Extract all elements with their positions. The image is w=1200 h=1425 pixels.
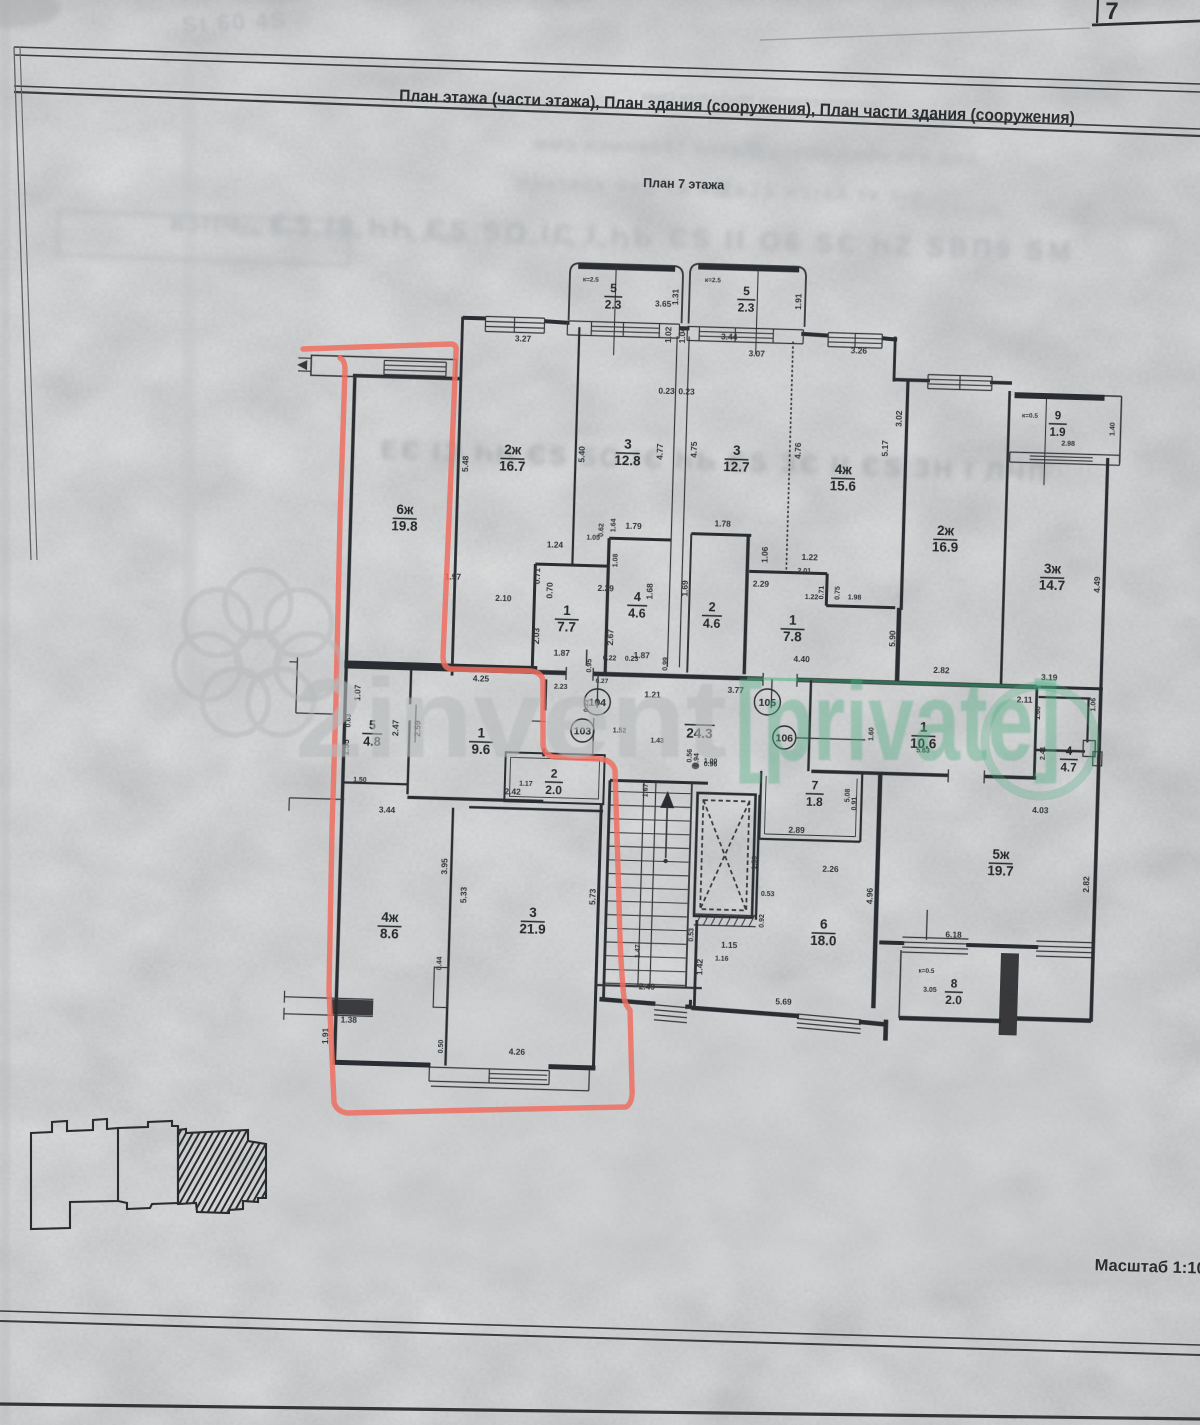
svg-text:2.89: 2.89 xyxy=(788,825,805,835)
svg-text:9: 9 xyxy=(1055,410,1062,422)
svg-text:5.17: 5.17 xyxy=(880,440,890,457)
svg-text:2.49: 2.49 xyxy=(639,981,656,991)
svg-text:2.3: 2.3 xyxy=(738,300,755,314)
svg-text:4: 4 xyxy=(634,590,641,604)
svg-text:21.9: 21.9 xyxy=(519,921,546,937)
svg-text:12.8: 12.8 xyxy=(614,453,641,469)
svg-text:19.8: 19.8 xyxy=(391,518,418,534)
svg-text:1.42: 1.42 xyxy=(694,958,704,975)
svg-text:1.15: 1.15 xyxy=(721,940,738,950)
svg-text:5: 5 xyxy=(743,284,750,298)
svg-text:12.7: 12.7 xyxy=(723,459,750,475)
svg-text:1: 1 xyxy=(563,603,571,618)
svg-text:0.23: 0.23 xyxy=(658,386,675,396)
svg-text:Масштаб 1:10: Масштаб 1:10 xyxy=(1094,1256,1200,1277)
svg-text:к=0.5: к=0.5 xyxy=(918,968,935,975)
svg-text:1.91: 1.91 xyxy=(793,293,803,310)
svg-text:1.04: 1.04 xyxy=(677,327,687,344)
svg-text:14.7: 14.7 xyxy=(1039,577,1066,593)
svg-text:4ж: 4ж xyxy=(835,462,853,478)
svg-text:0.62: 0.62 xyxy=(598,523,605,537)
svg-text:2.03: 2.03 xyxy=(531,627,541,644)
svg-text:5.40: 5.40 xyxy=(576,446,586,463)
svg-text:2.26: 2.26 xyxy=(822,864,839,874)
svg-text:[private]: [private] xyxy=(735,659,1061,784)
svg-text:6ж: 6ж xyxy=(396,502,414,518)
svg-text:3: 3 xyxy=(529,905,537,920)
svg-text:1.08: 1.08 xyxy=(612,553,619,567)
svg-text:5.48: 5.48 xyxy=(460,455,470,472)
svg-text:3.27: 3.27 xyxy=(515,333,532,343)
svg-text:2.82: 2.82 xyxy=(1081,876,1091,893)
svg-text:1.59: 1.59 xyxy=(751,856,758,870)
svg-text:4.75: 4.75 xyxy=(689,441,699,458)
svg-text:5ж: 5ж xyxy=(992,847,1010,863)
svg-text:1.8: 1.8 xyxy=(806,795,823,809)
svg-text:5.73: 5.73 xyxy=(587,888,597,905)
svg-text:2.0: 2.0 xyxy=(945,993,962,1007)
svg-text:4.26: 4.26 xyxy=(509,1046,526,1056)
svg-text:1.40: 1.40 xyxy=(1109,422,1116,436)
svg-text:1.06: 1.06 xyxy=(759,546,769,563)
svg-text:6: 6 xyxy=(820,917,828,932)
svg-text:0.23: 0.23 xyxy=(678,386,695,396)
svg-text:3.44: 3.44 xyxy=(379,804,396,814)
svg-text:16.9: 16.9 xyxy=(932,539,959,555)
svg-text:2.98: 2.98 xyxy=(1061,441,1075,448)
svg-text:3: 3 xyxy=(733,443,741,458)
svg-text:1.69: 1.69 xyxy=(679,580,689,597)
svg-text:2ж: 2ж xyxy=(937,523,955,539)
svg-text:4.77: 4.77 xyxy=(655,443,665,460)
svg-text:7.7: 7.7 xyxy=(557,619,576,635)
svg-text:1.22: 1.22 xyxy=(801,552,818,562)
svg-text:4ж: 4ж xyxy=(381,910,399,926)
svg-text:1.38: 1.38 xyxy=(340,1014,357,1024)
svg-text:2.29: 2.29 xyxy=(753,578,770,588)
svg-text:(ЅИЅ): (ЅИЅ) xyxy=(1060,82,1120,106)
svg-text:1.02: 1.02 xyxy=(663,326,673,343)
svg-text:8: 8 xyxy=(951,977,958,991)
svg-text:7.8: 7.8 xyxy=(783,629,803,645)
svg-text:1.79: 1.79 xyxy=(625,521,642,531)
svg-text:3.95: 3.95 xyxy=(439,858,449,875)
svg-text:6.18: 6.18 xyxy=(945,929,962,939)
svg-text:0.91: 0.91 xyxy=(851,797,858,811)
svg-text:1.47: 1.47 xyxy=(635,944,642,958)
svg-text:План 7 этажа: План 7 этажа xyxy=(643,176,726,192)
svg-text:1: 1 xyxy=(789,613,797,628)
svg-text:к=2.5: к=2.5 xyxy=(705,277,722,284)
svg-text:2.01: 2.01 xyxy=(797,568,811,575)
svg-text:4: 4 xyxy=(1066,746,1073,758)
svg-text:0.71: 0.71 xyxy=(532,567,542,584)
svg-text:3.02: 3.02 xyxy=(894,410,904,427)
svg-text:0.44: 0.44 xyxy=(436,956,443,970)
svg-text:1.17: 1.17 xyxy=(519,781,533,788)
svg-text:0.53: 0.53 xyxy=(688,928,695,942)
svg-text:к=2.5: к=2.5 xyxy=(583,276,600,283)
svg-text:8.6: 8.6 xyxy=(380,926,400,942)
svg-text:3.07: 3.07 xyxy=(748,348,765,358)
svg-text:к=0.5: к=0.5 xyxy=(1022,412,1039,419)
svg-text:1.22: 1.22 xyxy=(805,594,819,601)
svg-text:1.16: 1.16 xyxy=(715,956,729,963)
svg-text:0.53: 0.53 xyxy=(761,891,775,898)
svg-text:5: 5 xyxy=(610,281,617,295)
svg-text:16.7: 16.7 xyxy=(499,458,526,474)
svg-text:2.3: 2.3 xyxy=(605,297,622,311)
svg-text:2.10: 2.10 xyxy=(495,593,512,603)
svg-text:нииɔ｣: нииɔ｣ xyxy=(1124,208,1177,230)
svg-text:4.76: 4.76 xyxy=(793,442,803,459)
svg-text:1.9: 1.9 xyxy=(1049,427,1065,439)
svg-text:1.06: 1.06 xyxy=(1090,698,1097,712)
svg-text:19.7: 19.7 xyxy=(987,863,1014,879)
svg-text:4.03: 4.03 xyxy=(1032,805,1049,815)
svg-text:2.29: 2.29 xyxy=(597,583,614,593)
svg-text:0.75: 0.75 xyxy=(834,586,841,600)
svg-text:2.42: 2.42 xyxy=(504,786,521,796)
svg-text:2ж: 2ж xyxy=(504,442,522,458)
svg-text:2: 2 xyxy=(708,600,715,614)
svg-text:15.6: 15.6 xyxy=(829,478,856,494)
svg-text:1.64: 1.64 xyxy=(610,518,617,532)
svg-text:2.67: 2.67 xyxy=(605,629,615,646)
svg-text:3.44: 3.44 xyxy=(721,331,738,341)
svg-text:1.24: 1.24 xyxy=(547,539,564,549)
svg-text:0.70: 0.70 xyxy=(544,582,554,599)
svg-text:4.96: 4.96 xyxy=(864,887,874,904)
svg-text:3ж: 3ж xyxy=(1044,561,1062,577)
svg-text:0.92: 0.92 xyxy=(759,914,766,928)
svg-text:1.67: 1.67 xyxy=(642,783,649,797)
svg-text:5.90: 5.90 xyxy=(887,630,897,647)
svg-text:2invent: 2invent xyxy=(295,656,727,781)
svg-text:3.05: 3.05 xyxy=(923,987,937,994)
svg-text:1.31: 1.31 xyxy=(670,288,680,305)
svg-text:1.98: 1.98 xyxy=(848,594,862,601)
svg-text:5.69: 5.69 xyxy=(775,996,792,1006)
svg-text:18.0: 18.0 xyxy=(810,933,837,949)
svg-text:2.0: 2.0 xyxy=(545,783,562,797)
svg-text:7: 7 xyxy=(1105,0,1118,25)
svg-text:3: 3 xyxy=(624,437,632,452)
svg-text:1.77: 1.77 xyxy=(1009,988,1016,1002)
svg-text:4.7: 4.7 xyxy=(1060,762,1076,774)
svg-text:4.6: 4.6 xyxy=(703,617,721,632)
svg-text:4.6: 4.6 xyxy=(628,606,646,621)
svg-text:1.78: 1.78 xyxy=(714,518,731,528)
svg-text:0.50: 0.50 xyxy=(438,1039,445,1053)
svg-text:1.68: 1.68 xyxy=(644,583,654,600)
svg-text:St 60 4S: St 60 4S xyxy=(181,6,288,37)
svg-text:4.49: 4.49 xyxy=(1092,576,1102,593)
svg-text:0.71: 0.71 xyxy=(818,586,825,600)
svg-text:3.26: 3.26 xyxy=(851,345,868,355)
svg-text:5.33: 5.33 xyxy=(458,886,468,903)
